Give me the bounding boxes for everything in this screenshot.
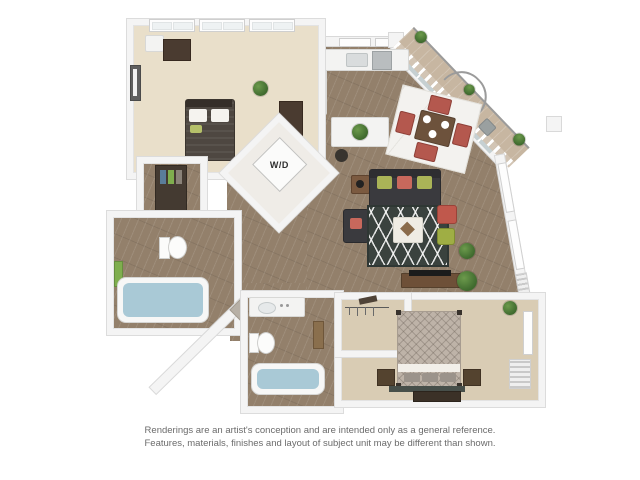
bedroom2-window — [523, 311, 533, 355]
bedroom1-dresser — [163, 39, 191, 61]
bedroom2-nightstand — [377, 369, 395, 386]
sofa — [369, 169, 441, 209]
chair-pillow-red — [350, 218, 362, 229]
sofa-pillow-red — [397, 176, 412, 189]
closet2-rod — [345, 307, 389, 308]
bedroom1-window-3 — [249, 19, 295, 32]
side-table — [351, 175, 370, 194]
bathtub2-water — [257, 369, 319, 389]
dishwasher — [372, 51, 392, 70]
bedroom1-bed — [185, 99, 235, 161]
bed1-pillow-2 — [211, 109, 229, 122]
wall-art — [130, 65, 141, 101]
kitchen-island — [331, 117, 389, 147]
living-plant — [459, 243, 475, 259]
bed2-pillow-2 — [422, 373, 438, 382]
accent-chair — [343, 209, 369, 243]
island-plant — [352, 124, 368, 140]
disclaimer-line-2: Features, materials, finishes and layout… — [0, 437, 640, 450]
bedroom1-window-2 — [199, 19, 245, 32]
bedroom2-nightstand-2 — [463, 369, 481, 386]
sofa-pillow-green — [377, 176, 392, 189]
bedroom2-dresser — [413, 391, 461, 402]
sofa-pillow-green-2 — [417, 176, 432, 189]
bedroom1-plant — [253, 81, 268, 96]
bed2-pillow-3 — [440, 373, 456, 382]
bathroom2-bathtub — [251, 363, 325, 395]
bathroom2-vanity — [249, 297, 305, 317]
disclaimer-caption: Renderings are an artist's conception an… — [0, 424, 640, 450]
ottoman-green — [437, 228, 455, 245]
closet1-wardrobe — [155, 165, 187, 211]
bed1-pillow — [189, 109, 207, 122]
bed1-throw-green — [190, 125, 202, 133]
washer-dryer-label: W/D — [270, 160, 289, 170]
bedroom2-plant — [503, 301, 517, 315]
apartment-floorplan: W/D — [85, 5, 545, 405]
washer-dryer: W/D — [252, 137, 307, 192]
bedroom2-bed — [397, 311, 461, 387]
coffee-table — [393, 217, 423, 243]
disclaimer-line-1: Renderings are an artist's conception an… — [0, 424, 640, 437]
bedroom1-nightstand — [145, 35, 164, 52]
ottoman-red — [437, 205, 457, 224]
bed2-pillow — [404, 373, 420, 382]
kitchen-sink — [346, 53, 368, 67]
floorplan-image: W/D — [0, 0, 640, 480]
bathtub-water — [123, 283, 203, 317]
closet2-shelf-box — [359, 295, 378, 305]
television — [409, 270, 451, 276]
wall-pillar-2 — [547, 117, 561, 131]
balcony-planter — [412, 29, 429, 46]
living-plant-2 — [457, 271, 477, 291]
island-stool — [335, 149, 348, 162]
bathroom1-bathtub — [117, 277, 209, 323]
bedroom2-blinds — [509, 359, 531, 389]
bedroom1-window — [149, 19, 195, 32]
towel-ladder — [313, 321, 324, 349]
kitchen-window — [339, 38, 371, 47]
bathroom1-toilet-bowl — [168, 236, 187, 259]
balcony-planter-3 — [511, 131, 528, 148]
bathroom2-toilet-bowl — [257, 332, 275, 354]
